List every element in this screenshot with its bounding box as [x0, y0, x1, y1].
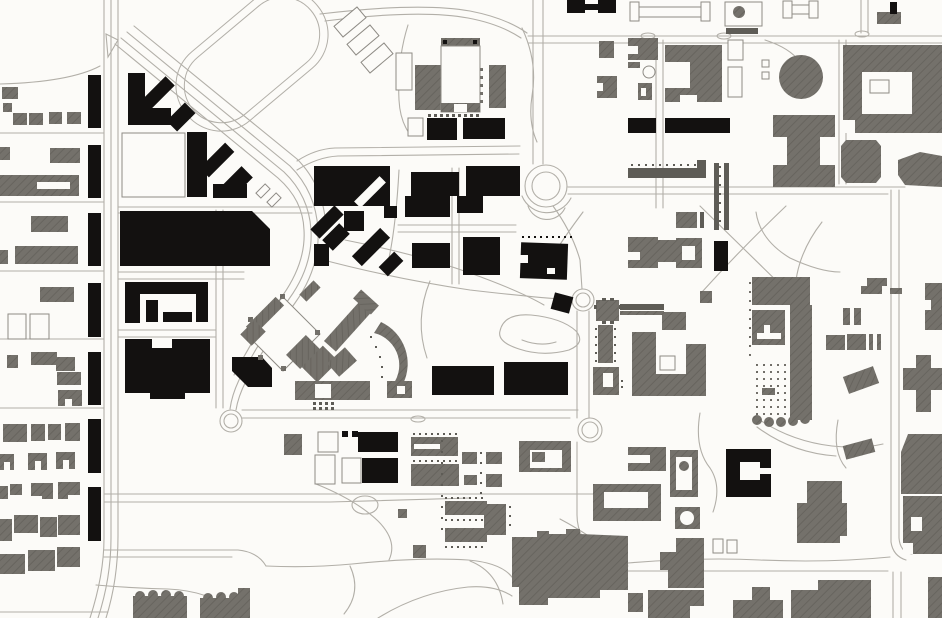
colonnade-dot — [431, 460, 433, 462]
colonnade-dot — [777, 364, 779, 366]
building-gray — [40, 517, 57, 537]
building-gray — [48, 424, 61, 440]
building-gray — [15, 246, 78, 264]
plaza-square — [122, 133, 185, 197]
building-black — [352, 431, 358, 437]
colonnade-dot — [756, 399, 758, 401]
colonnade-dot — [614, 360, 616, 362]
colonnade-dot — [455, 433, 457, 435]
site-feature — [762, 72, 769, 79]
building-gray — [31, 216, 68, 232]
building-black — [665, 118, 730, 133]
colonnade-dot — [756, 385, 758, 387]
building-gray — [57, 372, 81, 385]
building-gray — [0, 147, 10, 160]
courtyard-void — [603, 373, 613, 387]
building-gray — [7, 355, 18, 368]
courtyard-void — [682, 246, 695, 260]
building-gray — [67, 112, 81, 124]
colonnade-dot — [441, 484, 443, 486]
colonnade-dot — [749, 282, 751, 284]
courtyard-void — [628, 252, 640, 260]
colonnade-dot — [784, 406, 786, 408]
city-block — [405, 196, 450, 217]
courtyard-void — [454, 104, 467, 112]
building-gray — [411, 464, 459, 486]
colonnade-dot — [481, 519, 483, 521]
colonnade-dot — [763, 385, 765, 387]
colonnade-dot — [784, 392, 786, 394]
colonnade-dot — [763, 371, 765, 373]
colonnade-dot — [441, 462, 443, 464]
colonnade-dot — [756, 413, 758, 415]
slab-row — [88, 419, 101, 473]
colonnade-dot — [558, 236, 560, 238]
colonnade-dot — [437, 460, 439, 462]
mall-pavilion — [596, 300, 619, 321]
colonnade-dot — [595, 336, 597, 338]
colonnade-dot — [770, 371, 772, 373]
colonnade-dot — [463, 519, 465, 521]
site-feature — [660, 356, 675, 370]
auditorium-hall — [441, 46, 480, 112]
colonnade-dot — [475, 497, 477, 499]
building-gray — [0, 519, 12, 541]
courtyard-void — [414, 444, 440, 449]
building-gray — [877, 334, 881, 350]
colonnade-dot — [784, 385, 786, 387]
colonnade-dot — [784, 364, 786, 366]
courtyard-void — [315, 384, 331, 398]
colonnade-dot — [777, 378, 779, 380]
building-gray — [284, 434, 302, 455]
colonnade-dot — [443, 460, 445, 462]
colonnade-bar — [714, 163, 719, 230]
courtyard-void — [760, 468, 771, 474]
courtyard-void — [65, 399, 72, 406]
colonnade-dot — [749, 327, 751, 329]
colonnade-dot — [413, 433, 415, 435]
colonnade-dot — [631, 164, 633, 166]
colonnade-dot — [719, 184, 721, 186]
colonnade-dot — [480, 462, 482, 464]
colonnade-dot — [480, 100, 483, 103]
colonnade-dot — [480, 84, 483, 87]
building-gray — [50, 148, 80, 163]
building-gray — [58, 492, 68, 499]
building-gray — [413, 545, 426, 558]
building-black — [598, 0, 616, 13]
site-feature — [315, 455, 335, 484]
colonnade-dot — [319, 402, 322, 405]
building-black — [358, 432, 398, 452]
colonnade-dot — [480, 76, 483, 79]
colonnade-dot — [425, 433, 427, 435]
courtyard-void — [397, 386, 405, 394]
colonnade-dot — [481, 497, 483, 499]
slab-row — [88, 352, 101, 405]
colonnade-dot — [457, 497, 459, 499]
colonnade-dot — [777, 392, 779, 394]
colonnade-dot — [552, 236, 554, 238]
building-gray — [486, 452, 502, 464]
building-gray — [854, 308, 861, 325]
mall-bar — [598, 325, 613, 363]
colonnade-dot — [441, 506, 443, 508]
building-gray — [248, 317, 253, 322]
colonnade-dot — [441, 451, 443, 453]
building-gray — [445, 501, 487, 515]
courtyard-void — [37, 182, 70, 189]
building-gray — [532, 452, 545, 462]
colonnade-dot — [452, 114, 455, 117]
courtyard-void — [63, 460, 69, 469]
colonnade-dot — [719, 202, 721, 204]
building-gray — [843, 308, 850, 325]
building-black — [890, 2, 897, 14]
colonnade-dot — [480, 492, 482, 494]
colonnade-dot — [680, 164, 682, 166]
site-feature — [381, 376, 383, 378]
housing-chevron — [384, 206, 397, 218]
site-feature — [342, 458, 361, 483]
building-gray — [10, 484, 22, 495]
colonnade-dot — [437, 433, 439, 435]
colonnade-bar — [724, 163, 729, 230]
colonnade-dot — [325, 402, 328, 405]
slab-row — [88, 145, 101, 198]
colonnade-dot — [756, 364, 758, 366]
slab-row — [88, 75, 101, 128]
colonnade-dot — [440, 114, 443, 117]
colonnade-dot — [457, 546, 459, 548]
colonnade-dot — [451, 519, 453, 521]
colonnade-dot — [784, 378, 786, 380]
building-black — [628, 118, 656, 133]
building-gray — [56, 357, 75, 371]
colonnade-dot — [770, 364, 772, 366]
colonnade-dot — [534, 236, 536, 238]
site-feature — [728, 40, 743, 60]
colonnade-dot — [313, 407, 316, 410]
building-gray — [42, 493, 53, 499]
building-gray — [398, 509, 407, 518]
building-gray — [3, 424, 27, 442]
building-gray — [3, 103, 12, 112]
colonnade-dot — [469, 546, 471, 548]
colonnade-dot — [777, 399, 779, 401]
colonnade-dot — [763, 406, 765, 408]
colonnade-dot — [719, 175, 721, 177]
colonnade-dot — [480, 68, 483, 71]
site-feature — [697, 160, 706, 178]
dumbbell-building — [773, 115, 835, 137]
colonnade-dot — [313, 402, 316, 405]
colonnade-dot — [756, 378, 758, 380]
colonnade-dot — [319, 407, 322, 410]
colonnade-dot — [428, 114, 431, 117]
building-black — [457, 196, 483, 213]
building-gray — [686, 344, 706, 378]
colonnade-dot — [749, 300, 751, 302]
site-feature — [726, 28, 758, 34]
colonnade-dot — [540, 236, 542, 238]
site-feature — [408, 118, 423, 136]
octagon-building — [841, 140, 881, 183]
colonnade-dot — [666, 164, 668, 166]
housing-chevron — [128, 73, 145, 125]
building-black — [196, 294, 208, 322]
site-feature — [381, 366, 383, 368]
building-gray — [135, 591, 145, 601]
building-gray — [161, 590, 171, 600]
colonnade-dot — [749, 336, 751, 338]
building-gray — [901, 434, 942, 494]
courtyard-void — [843, 120, 855, 133]
colonnade-dot — [481, 546, 483, 548]
building-gray — [867, 278, 887, 286]
site-feature — [630, 2, 639, 21]
colonnade-dot — [469, 497, 471, 499]
building-gray — [599, 41, 614, 58]
superblock — [125, 282, 208, 294]
colonnade-dot — [475, 546, 477, 548]
site-feature — [602, 321, 606, 324]
building-gray — [773, 165, 835, 187]
site-feature — [602, 298, 606, 301]
colonnade-dot — [546, 236, 548, 238]
colonnade-dot — [784, 399, 786, 401]
colonnade-dot — [749, 354, 751, 356]
colonnade-dot — [756, 371, 758, 373]
library-complex — [752, 277, 810, 305]
building-gray — [776, 417, 786, 427]
site-feature — [643, 66, 655, 78]
colonnade-dot — [614, 336, 616, 338]
building-black — [427, 118, 457, 140]
auditorium-wing — [415, 65, 443, 110]
building-black-colonnade-dots — [522, 236, 572, 238]
slab-row — [88, 283, 101, 337]
building-gray — [877, 12, 901, 24]
building-gray — [462, 452, 477, 464]
housing-chevron — [213, 184, 247, 198]
building-black — [473, 40, 477, 44]
colonnade-dot — [784, 413, 786, 415]
courtyard-void — [911, 517, 922, 531]
building-gray — [826, 335, 845, 350]
courtyard-void — [152, 339, 172, 348]
building-black — [163, 312, 192, 322]
map-canvas — [0, 0, 942, 618]
site-feature — [870, 80, 889, 93]
site-feature — [594, 305, 597, 309]
building-gray — [733, 6, 745, 18]
courtyard-void — [680, 511, 694, 525]
city-block — [463, 237, 500, 275]
site-feature — [809, 1, 818, 18]
colonnade-dot — [595, 328, 597, 330]
building-gray — [229, 592, 239, 602]
site-feature — [318, 432, 338, 452]
site-feature — [396, 53, 412, 90]
colonnade-dot — [451, 546, 453, 548]
colonnade-dot — [719, 193, 721, 195]
colonnade-dot — [509, 524, 511, 526]
building-black — [150, 393, 185, 399]
building-gray — [797, 503, 847, 543]
building-gray — [869, 334, 873, 350]
colonnade-dot — [777, 406, 779, 408]
site-outline — [8, 314, 26, 339]
site-feature — [610, 321, 614, 324]
courtyard-void — [4, 462, 10, 470]
building-black — [146, 300, 158, 322]
drum-building — [779, 55, 823, 99]
colonnade-dot — [595, 360, 597, 362]
auditorium-wing — [489, 65, 506, 108]
building-gray — [57, 547, 80, 567]
colonnade-dot — [443, 433, 445, 435]
colonnade-dot — [419, 460, 421, 462]
colonnade-dot — [509, 515, 511, 517]
colonnade-dot — [522, 236, 524, 238]
colonnade-dot — [449, 433, 451, 435]
city-block — [411, 172, 459, 196]
colonnade-dot — [777, 413, 779, 415]
colonnade-dot — [756, 392, 758, 394]
colonnade-dot — [645, 164, 647, 166]
building-gray — [281, 366, 286, 371]
slab-row — [88, 213, 101, 266]
building-gray — [203, 593, 213, 603]
colonnade-dot — [445, 497, 447, 499]
colonnade-dot — [614, 344, 616, 346]
colonnade-dot — [446, 114, 449, 117]
colonnade-dot — [564, 236, 566, 238]
site-feature-colonnade-dots — [428, 114, 479, 117]
building-gray — [315, 330, 320, 335]
courtyard-void — [597, 83, 603, 91]
colonnade-dot — [469, 519, 471, 521]
site-feature — [783, 1, 792, 18]
colonnade-dot — [638, 164, 640, 166]
building-gray — [29, 113, 43, 125]
building-black — [567, 0, 585, 13]
building-black — [463, 118, 505, 139]
colonnade-dot — [673, 164, 675, 166]
colonnade-dot — [652, 164, 654, 166]
site-feature — [370, 336, 372, 338]
colonnade-dot — [458, 114, 461, 117]
courtyard-void — [604, 492, 648, 508]
colonnade-dot — [621, 386, 623, 388]
building-gray — [762, 388, 775, 395]
colonnade-dot — [614, 352, 616, 354]
building-gray — [800, 414, 810, 424]
colonnade-dot — [434, 114, 437, 117]
colonnade-dot — [756, 406, 758, 408]
courtyard-void — [903, 543, 913, 554]
colonnade-dot — [445, 546, 447, 548]
colonnade-dot — [455, 460, 457, 462]
courtyard-void — [740, 462, 760, 480]
colonnade-dot — [749, 345, 751, 347]
courtyard-void — [35, 461, 41, 470]
colonnade-dot — [331, 402, 334, 405]
colonnade-dot — [749, 291, 751, 293]
building-gray — [2, 87, 18, 99]
building-gray — [174, 591, 184, 601]
colonnade-dot — [509, 506, 511, 508]
building-gray — [28, 550, 55, 571]
courtyard-void — [520, 255, 528, 263]
colonnade-dot — [719, 166, 721, 168]
colonnade-dot — [445, 519, 447, 521]
building-gray — [807, 481, 842, 503]
colonnade-dot — [770, 378, 772, 380]
building-gray — [31, 352, 57, 365]
barbell-building — [634, 7, 706, 17]
building-gray — [764, 417, 774, 427]
colonnade-dot — [763, 413, 765, 415]
colonnade-dot — [413, 460, 415, 462]
building-gray — [676, 212, 697, 228]
colonnade-dot — [528, 236, 530, 238]
building-gray — [238, 588, 250, 600]
building-gray — [258, 355, 263, 360]
site-feature — [379, 356, 381, 358]
site-feature — [762, 60, 769, 67]
colonnade-dot — [441, 440, 443, 442]
building-gray — [13, 113, 27, 125]
colonnade-dot — [770, 385, 772, 387]
building-gray — [662, 312, 686, 330]
building-gray — [788, 416, 798, 426]
colonnade-dot — [476, 114, 479, 117]
colonnade-dot — [470, 114, 473, 117]
city-block — [412, 243, 450, 268]
colonnade-dot — [770, 399, 772, 401]
slab-block — [504, 362, 568, 395]
colonnade-dot — [451, 497, 453, 499]
building-gray — [928, 577, 942, 618]
colonnade-dot — [659, 164, 661, 166]
building-gray — [752, 415, 762, 425]
colonnade-dot — [770, 406, 772, 408]
site-feature — [619, 305, 622, 309]
building-gray — [658, 240, 676, 262]
colonnade-dot — [463, 497, 465, 499]
site-feature — [728, 67, 742, 97]
courtyard-void — [665, 62, 690, 88]
building-gray — [148, 590, 158, 600]
colonnade-dot — [475, 519, 477, 521]
colonnade-dot — [777, 385, 779, 387]
site-feature — [375, 346, 377, 348]
courtyard-void — [764, 325, 770, 339]
building-black — [362, 458, 398, 483]
courtyard-void — [680, 95, 697, 102]
site-feature — [713, 539, 723, 553]
building-gray — [847, 334, 866, 350]
courtyard-void — [925, 300, 931, 310]
colonnade-dot — [441, 473, 443, 475]
building-gray — [0, 250, 8, 264]
colonnade-dot — [480, 92, 483, 95]
colonnade-dot — [749, 309, 751, 311]
colonnade-dot — [331, 407, 334, 410]
